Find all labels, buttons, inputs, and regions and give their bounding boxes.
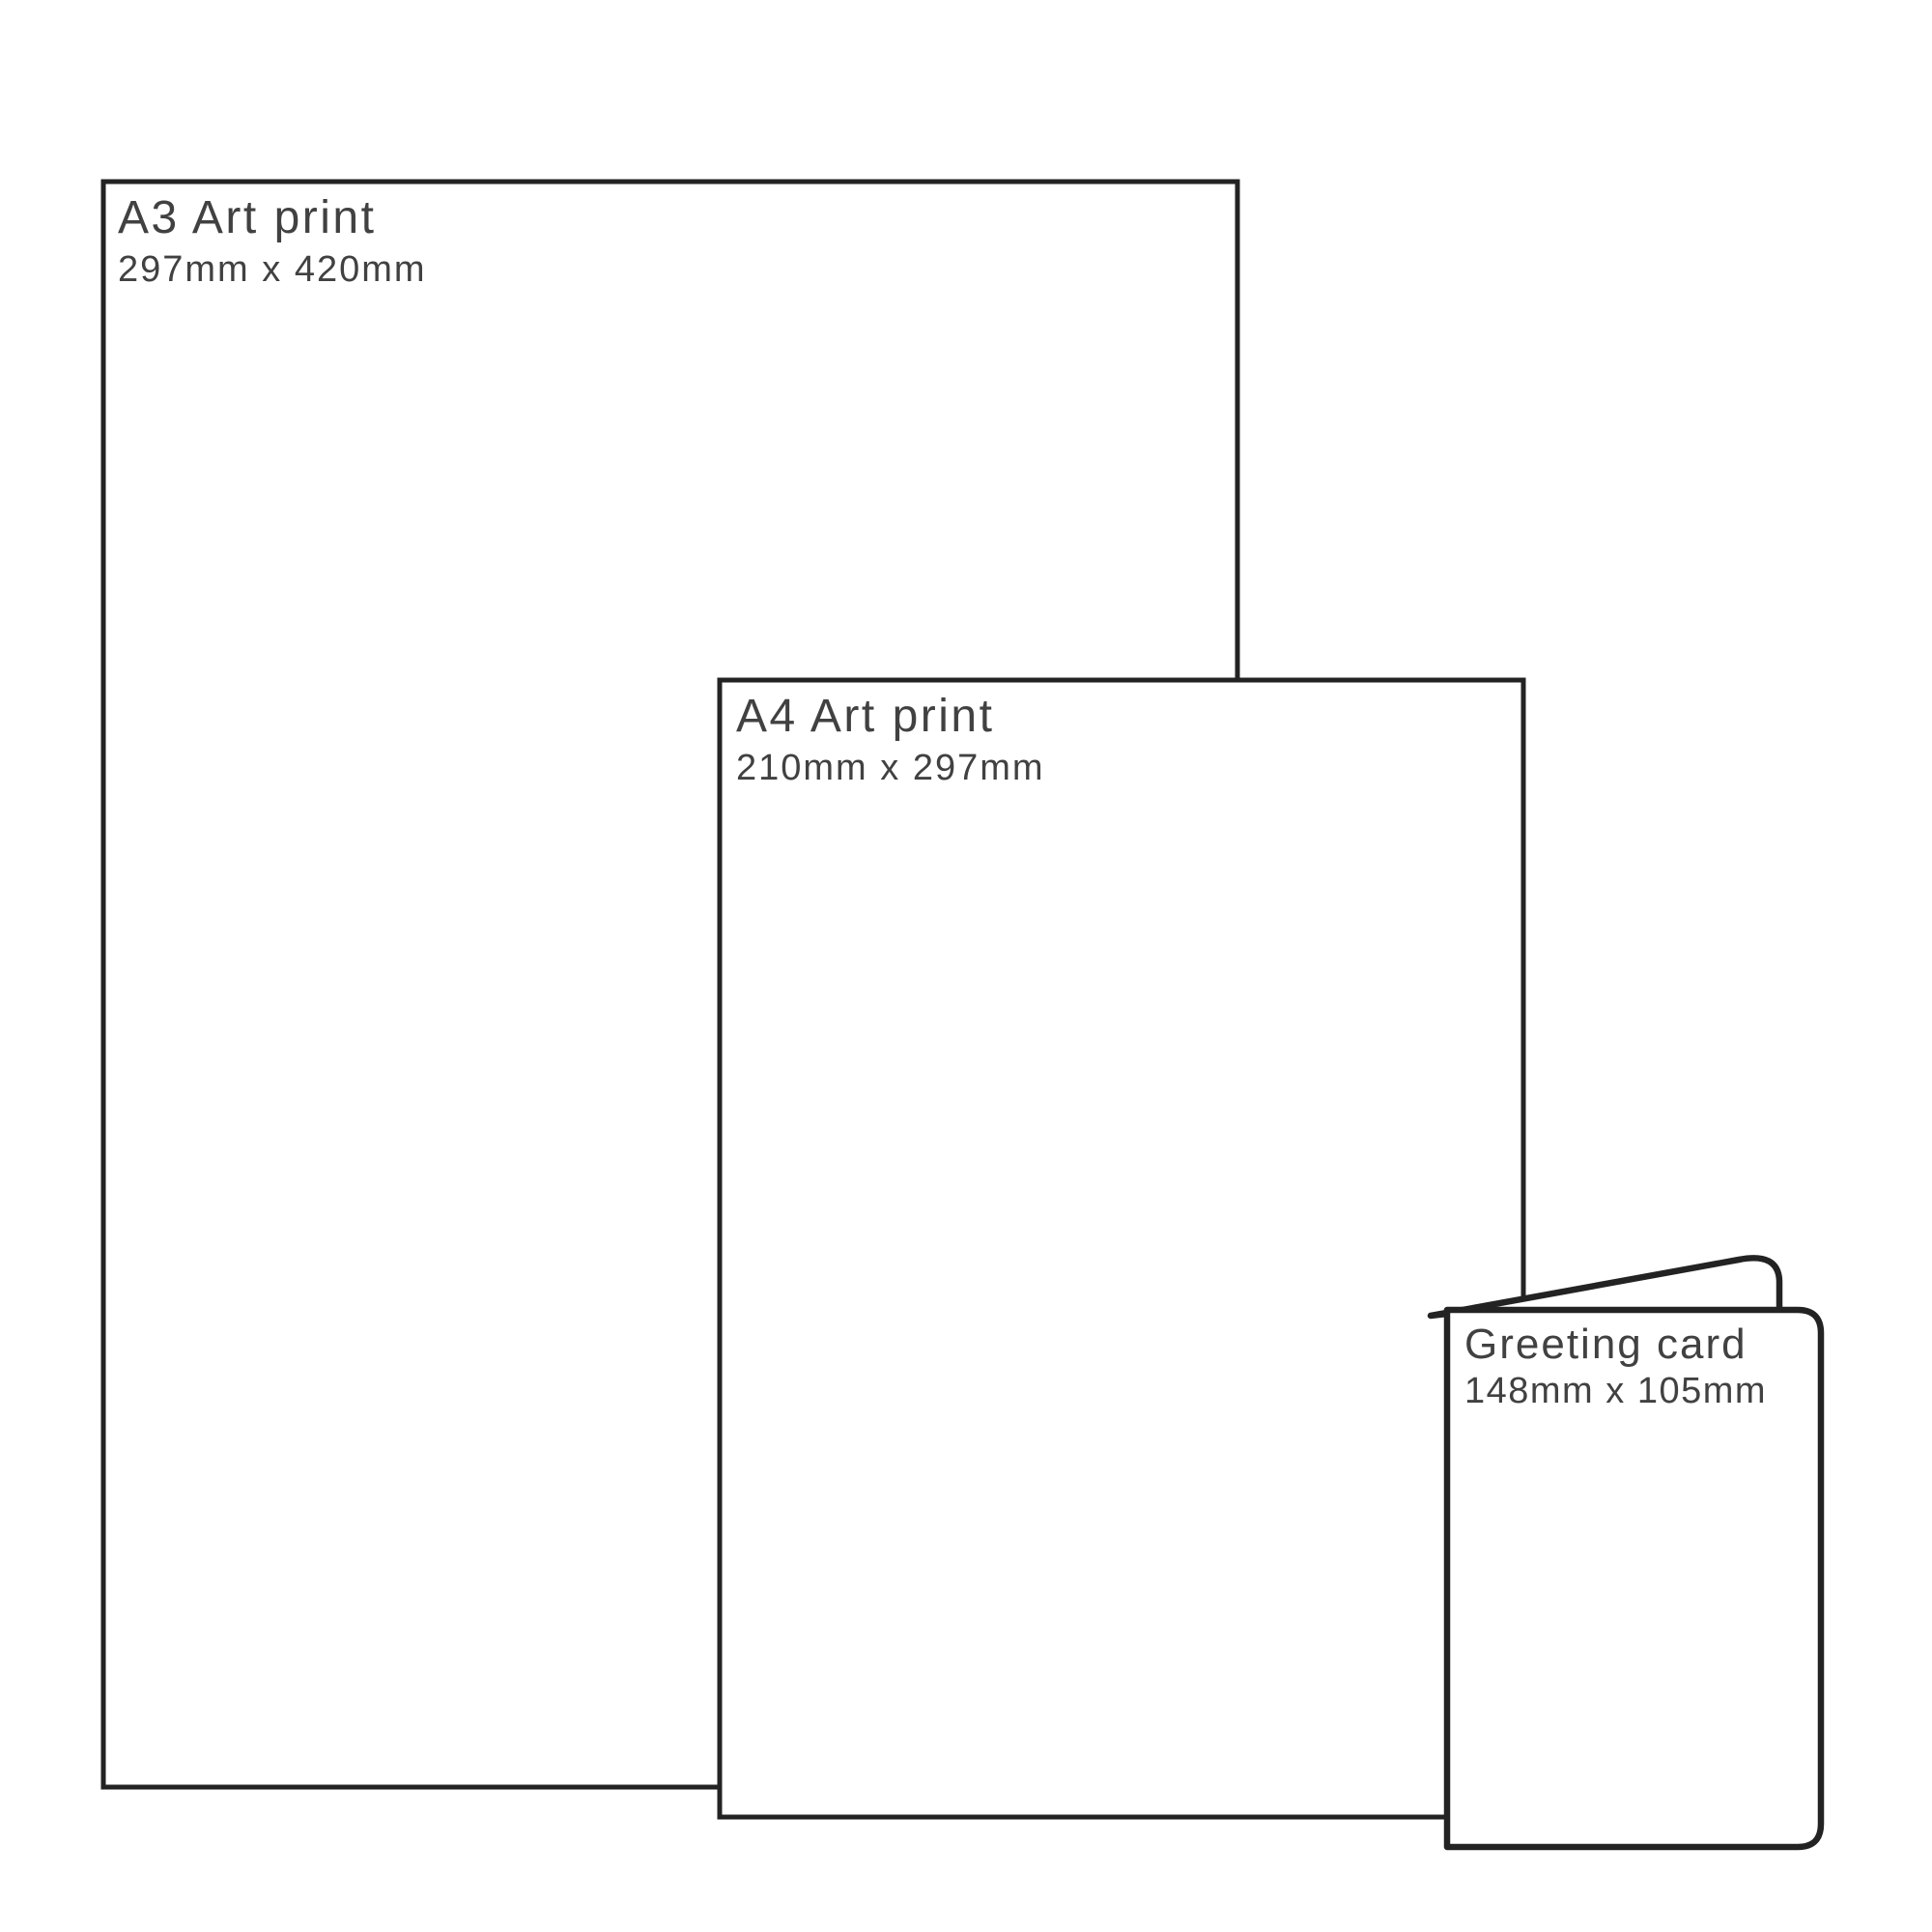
greeting-card-label: Greeting card 148mm x 105mm [1464, 1321, 1767, 1412]
a4-title: A4 Art print [736, 692, 1045, 743]
a3-label: A3 Art print 297mm x 420mm [118, 193, 427, 291]
greeting-card-dimensions: 148mm x 105mm [1464, 1372, 1767, 1412]
greeting-card-title: Greeting card [1464, 1321, 1767, 1368]
a4-dimensions: 210mm x 297mm [736, 749, 1045, 789]
a4-print-outline [720, 680, 1523, 1817]
size-comparison-diagram: A3 Art print 297mm x 420mm A4 Art print … [0, 0, 1932, 1932]
a4-label: A4 Art print 210mm x 297mm [736, 692, 1045, 789]
a3-dimensions: 297mm x 420mm [118, 250, 427, 291]
a3-title: A3 Art print [118, 193, 427, 244]
